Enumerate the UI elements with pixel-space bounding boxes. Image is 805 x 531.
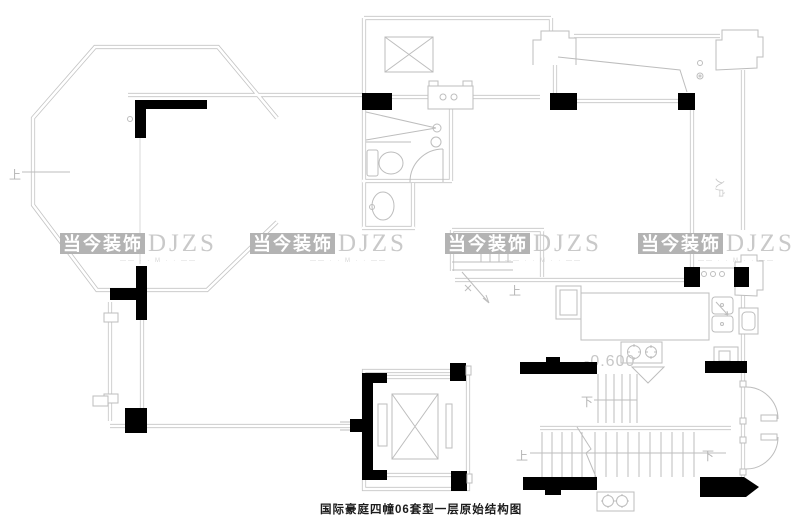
watermark-brand: 当今装饰 xyxy=(250,233,335,254)
stair-down-label: 下 xyxy=(702,449,714,463)
watermark-latin: DJZS xyxy=(726,231,795,256)
watermark-brand: 当今装饰 xyxy=(60,233,145,254)
left-up-label: 上 xyxy=(9,168,21,182)
shaft-top xyxy=(385,37,433,72)
drawing-title: 国际豪庭四幢06套型一层原始结构图 xyxy=(320,501,522,517)
watermark-tagline: —— · · M · · —— xyxy=(250,258,407,264)
counter xyxy=(581,293,709,340)
door-swing-arc xyxy=(746,437,778,469)
watermark: 当今装饰 DJZS —— · · M · · —— xyxy=(638,231,795,264)
watermark-latin: DJZS xyxy=(338,231,407,256)
watermark-latin: DJZS xyxy=(148,231,217,256)
structural-columns xyxy=(110,93,759,497)
watermark: 当今装饰 DJZS —— · · M · · —— xyxy=(250,231,407,264)
sink-basin xyxy=(372,192,394,220)
watermark-tagline: —— · · M · · —— xyxy=(60,258,217,264)
door-leaf xyxy=(761,415,777,421)
floor-plan-drawing: 上 下 上 下 入户 xyxy=(0,0,805,531)
watermark: 当今装饰 DJZS —— · · M · · —— xyxy=(60,231,217,264)
watermark-tagline: —— · · M · · —— xyxy=(638,258,795,264)
toilet-tank xyxy=(367,150,378,176)
entry-label: 入户 xyxy=(713,178,726,198)
toilet-bowl xyxy=(379,152,403,174)
door-swing-arc xyxy=(746,387,778,419)
door-leaf xyxy=(761,434,777,440)
elevator-core xyxy=(378,394,452,459)
watermark-latin: DJZS xyxy=(533,231,602,256)
floor-plan-page: 上 下 上 下 入户 xyxy=(0,0,805,531)
stair-up-label: 上 xyxy=(516,449,528,463)
stair-up-label: 上 xyxy=(509,284,521,298)
watermark-brand: 当今装饰 xyxy=(638,233,723,254)
watermark: 当今装饰 DJZS —— · · M · · —— xyxy=(445,231,602,264)
watermark-tagline: —— · · M · · —— xyxy=(445,258,602,264)
watermark-brand: 当今装饰 xyxy=(445,233,530,254)
entry-room: 入户 xyxy=(697,61,726,199)
staircase-lower: 下 上 下 xyxy=(516,374,726,477)
door-swing-arc xyxy=(410,149,443,182)
kitchen-sink xyxy=(712,297,733,314)
stair-down-label: 下 xyxy=(581,395,593,409)
